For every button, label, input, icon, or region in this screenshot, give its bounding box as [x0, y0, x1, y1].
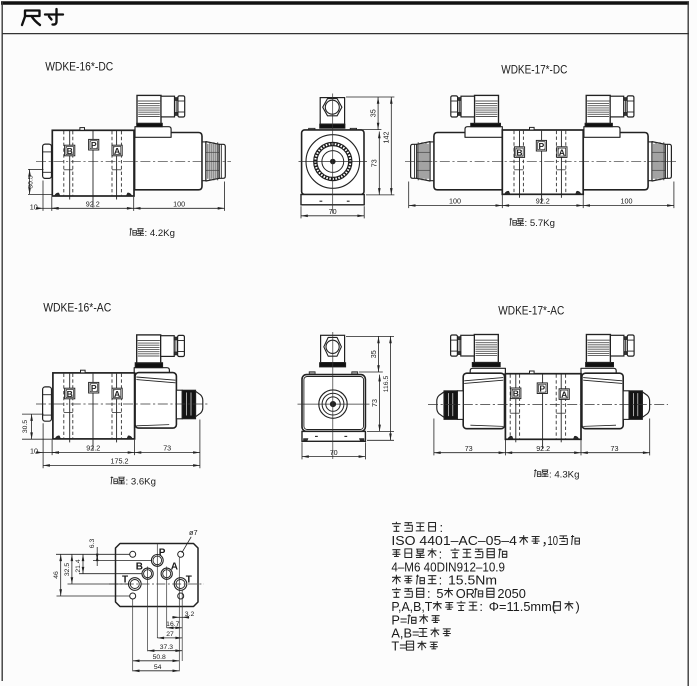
svg-text:6.3: 6.3 [89, 539, 96, 549]
svg-text:92.2: 92.2 [86, 200, 100, 209]
svg-text:A: A [114, 389, 120, 399]
svg-text:: 4.3Kg: : 4.3Kg [549, 469, 579, 480]
svg-text:P: P [91, 383, 97, 393]
svg-text:46: 46 [53, 571, 60, 579]
svg-text:35: 35 [369, 109, 378, 117]
svg-text:B: B [516, 148, 522, 158]
svg-text:Φ=11.5mm(: Φ=11.5mm( [489, 599, 557, 614]
svg-text:100: 100 [173, 200, 185, 209]
svg-text:73: 73 [465, 444, 473, 453]
svg-text:92.2: 92.2 [536, 444, 550, 453]
svg-text:70: 70 [329, 207, 337, 216]
svg-text:P: P [539, 384, 545, 394]
svg-text:30.5: 30.5 [22, 420, 29, 433]
svg-text:: 4.2Kg: : 4.2Kg [145, 228, 175, 239]
svg-text:21.4: 21.4 [75, 559, 82, 572]
svg-text:50.8: 50.8 [153, 654, 166, 661]
svg-text:37.3: 37.3 [160, 644, 173, 651]
svg-text:OR: OR [456, 586, 475, 601]
svg-text:73: 73 [611, 444, 619, 453]
svg-text:ISO 4401–AC–05–4: ISO 4401–AC–05–4 [391, 533, 516, 548]
svg-text:A: A [171, 562, 178, 573]
svg-text:P: P [539, 141, 545, 151]
svg-text:10: 10 [548, 533, 559, 548]
svg-text:ø7: ø7 [189, 528, 198, 537]
svg-text:): ) [576, 599, 580, 614]
svg-text:B: B [513, 389, 519, 399]
svg-text:27: 27 [166, 631, 174, 638]
svg-text:100: 100 [621, 197, 633, 206]
svg-text::: : [479, 599, 483, 614]
svg-text:92.2: 92.2 [536, 197, 550, 206]
svg-text:A: A [561, 390, 567, 400]
svg-text:142: 142 [382, 132, 391, 144]
svg-text:WDKE-17*-AC: WDKE-17*-AC [498, 303, 564, 317]
svg-text:WDKE-16*-DC: WDKE-16*-DC [45, 59, 113, 73]
svg-text:5: 5 [436, 586, 443, 601]
svg-text:175.2: 175.2 [111, 457, 129, 466]
svg-text:16.7: 16.7 [166, 621, 179, 628]
svg-text:A: A [559, 148, 565, 158]
svg-text:32.5: 32.5 [64, 563, 71, 576]
svg-text:P: P [159, 547, 166, 558]
svg-text:30.5: 30.5 [28, 175, 35, 188]
svg-text:73: 73 [370, 159, 379, 167]
svg-text:35: 35 [369, 350, 378, 358]
svg-text:WDKE-16*-AC: WDKE-16*-AC [43, 300, 111, 314]
svg-text:B: B [67, 389, 73, 399]
svg-text:: 5.7Kg: : 5.7Kg [525, 218, 555, 229]
svg-text:T: T [186, 575, 192, 586]
svg-text:: 3.6Kg: : 3.6Kg [126, 477, 156, 488]
svg-text:T=: T= [391, 639, 406, 654]
svg-text:P: P [91, 140, 97, 150]
svg-text:A: A [114, 146, 120, 156]
svg-text:73: 73 [370, 399, 379, 407]
svg-text:WDKE-17*-DC: WDKE-17*-DC [501, 62, 567, 76]
svg-text:92.2: 92.2 [86, 444, 100, 453]
svg-text:B: B [67, 146, 73, 156]
svg-text:3.2: 3.2 [185, 611, 195, 618]
svg-text:100: 100 [449, 197, 461, 206]
svg-text:73: 73 [163, 444, 171, 453]
svg-text:70: 70 [330, 448, 338, 457]
svg-text:54: 54 [154, 664, 162, 671]
svg-text:10: 10 [30, 202, 38, 211]
svg-text:116.5: 116.5 [383, 376, 390, 393]
svg-text:10: 10 [30, 446, 38, 455]
svg-text:B: B [136, 562, 143, 573]
